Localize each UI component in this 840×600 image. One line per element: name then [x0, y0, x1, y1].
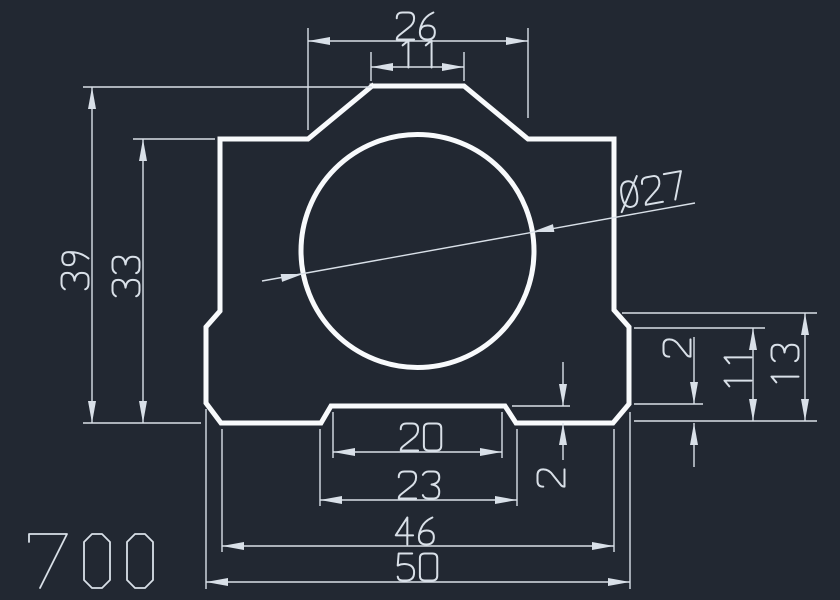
- dimension-39-2[interactable]: [62, 87, 373, 423]
- dimension-33-3[interactable]: [113, 139, 216, 423]
- dimension-text: [538, 469, 565, 486]
- bore-circle[interactable]: [301, 135, 534, 368]
- dimension-text: [772, 345, 799, 383]
- cad-canvas[interactable]: 700: [0, 0, 840, 600]
- dimension-text: [616, 168, 686, 212]
- dimension-line: [262, 203, 695, 281]
- title-glyph: [29, 534, 67, 588]
- dimension-13-7[interactable]: [622, 313, 817, 421]
- dimension-text: [396, 518, 434, 545]
- dimension-23-10[interactable]: [320, 429, 517, 506]
- dimension-text: [401, 424, 442, 451]
- dimension-46-11[interactable]: [222, 429, 614, 552]
- dimension-50-12[interactable]: [206, 409, 630, 589]
- dimension-11-6[interactable]: [634, 328, 765, 421]
- dimension-text: [62, 252, 89, 289]
- drawing-number-text[interactable]: [29, 534, 153, 588]
- title-glyph: [84, 534, 110, 588]
- dimension-dia27-4[interactable]: [262, 168, 695, 282]
- dimension-text: [113, 257, 140, 297]
- dimension-text: [664, 339, 691, 356]
- dimension-11-1[interactable]: [371, 41, 464, 82]
- dimension-text: [725, 357, 752, 386]
- dimension-2-5[interactable]: [634, 337, 703, 467]
- part-entity[interactable]: [206, 86, 629, 423]
- cad-drawing[interactable]: [0, 0, 840, 600]
- title-glyph: [127, 534, 153, 588]
- dimension-text: [398, 554, 438, 581]
- dimension-text: [399, 472, 440, 499]
- dimension-text: [397, 13, 435, 40]
- dimension-20-8[interactable]: [333, 412, 502, 458]
- dimension-text: [403, 41, 432, 68]
